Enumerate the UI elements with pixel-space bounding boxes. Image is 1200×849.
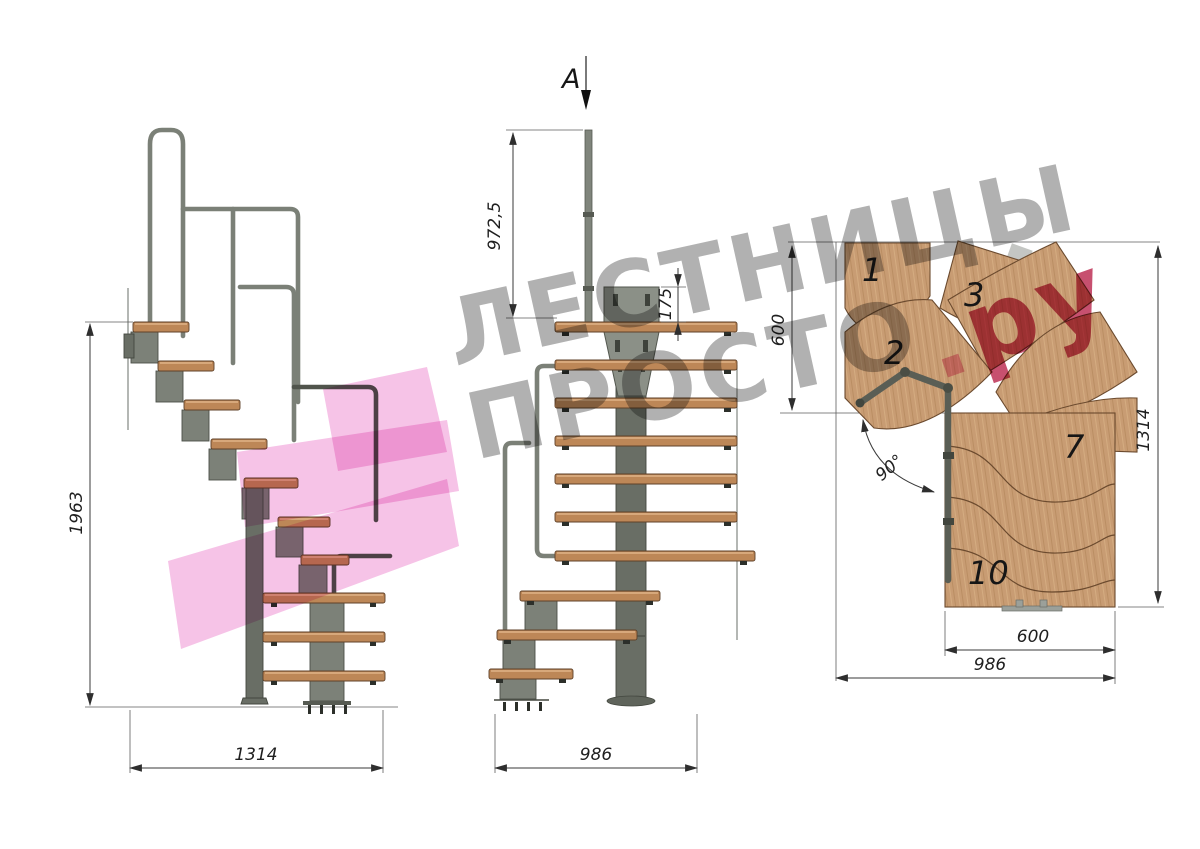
drawing-canvas: 1963 1314 A [0, 0, 1200, 849]
